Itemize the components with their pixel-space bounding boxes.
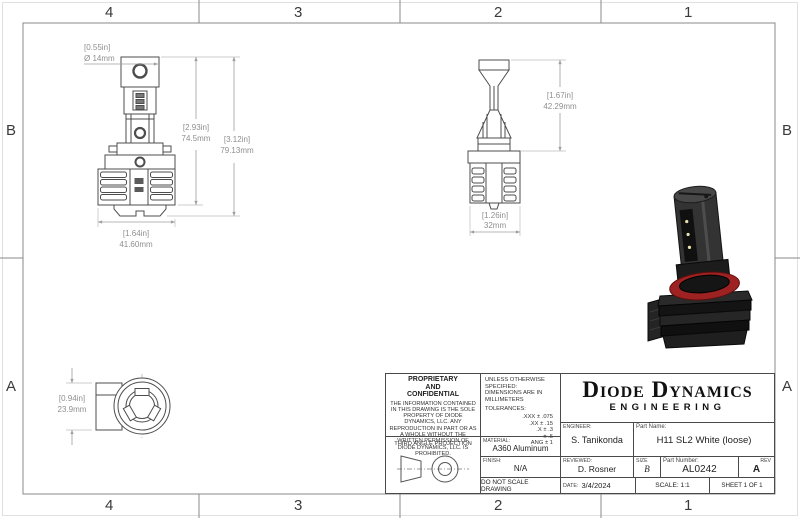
engineer-partname-row: ENGINEER: S. Tanikonda Part Name: H11 SL… (561, 423, 774, 457)
reviewed-value: D. Rosner (561, 464, 633, 474)
date-cell: DATE: 3/4/2024 (561, 478, 636, 493)
rev-cell: REV A (739, 457, 774, 477)
title-block-right-column: Diode Dynamics ENGINEERING ENGINEER: S. … (561, 374, 774, 493)
company-logo: Diode Dynamics ENGINEERING (561, 374, 774, 423)
part-number-value: AL0242 (661, 464, 738, 475)
engineer-value: S. Tanikonda (561, 435, 633, 445)
dimension-top-height: [0.94in] 23.9mm (58, 368, 92, 445)
svg-text:[0.55in]: [0.55in] (84, 43, 110, 52)
title-block-middle-column: UNLESS OTHERWISE SPECIFIED: DIMENSIONS A… (481, 374, 561, 493)
reviewed-cell: REVIEWED: D. Rosner (561, 457, 634, 477)
part-name-cell: Part Name: H11 SL2 White (loose) (634, 423, 774, 456)
tolerance-line: .XXX ± .075 (501, 414, 553, 421)
svg-text:32mm: 32mm (484, 221, 507, 230)
svg-text:23.9mm: 23.9mm (58, 405, 87, 414)
side-view (468, 60, 520, 209)
proprietary-notice: PROPRIETARY AND CONFIDENTIAL THE INFORMA… (386, 374, 480, 437)
part-name-label: Part Name: (636, 424, 666, 430)
unless-otherwise-line: UNLESS OTHERWISE SPECIFIED: (485, 377, 558, 390)
reviewed-partnumber-row: REVIEWED: D. Rosner SIZE B Part Number: … (561, 457, 774, 478)
third-angle-label: THIRD ANGLE PROJECTION (386, 441, 480, 447)
rev-value: A (739, 464, 774, 475)
svg-text:79.13mm: 79.13mm (220, 146, 254, 155)
date-label: DATE: (563, 483, 578, 489)
logo-subtitle: ENGINEERING (561, 402, 774, 413)
size-value: B (634, 464, 660, 474)
render-bulb (659, 183, 740, 303)
svg-text:[1.26in]: [1.26in] (482, 211, 508, 220)
svg-text:[0.94in]: [0.94in] (59, 394, 85, 403)
part-number-cell: Part Number: AL0242 (661, 457, 739, 477)
proprietary-heading: PROPRIETARY AND CONFIDENTIAL (388, 376, 478, 399)
dimension-front-height-outer: [3.12in] 79.13mm (167, 57, 254, 216)
date-value: 3/4/2024 (581, 481, 610, 490)
svg-text:[3.12in]: [3.12in] (224, 135, 250, 144)
drawing-sheet: 4 3 2 1 4 3 2 1 B A B A (0, 0, 800, 518)
tolerances-label: TOLERANCES: (485, 406, 558, 413)
isometric-render (648, 183, 752, 348)
logo-wordmark: Diode Dynamics (561, 379, 774, 401)
material-cell: MATERIAL: A360 Aluminum (481, 437, 560, 457)
material-value: A360 Aluminum (481, 444, 560, 453)
svg-text:[2.93in]: [2.93in] (183, 123, 209, 132)
part-name-value: H11 SL2 White (loose) (634, 435, 774, 446)
engineer-cell: ENGINEER: S. Tanikonda (561, 423, 634, 456)
dimensions-units-line: DIMENSIONS ARE IN MILLIMETERS (485, 390, 558, 403)
third-angle-projection-cell: THIRD ANGLE PROJECTION (386, 437, 480, 493)
title-block: PROPRIETARY AND CONFIDENTIAL THE INFORMA… (385, 373, 775, 494)
tolerance-line: .XX ± .15 (501, 421, 553, 428)
title-block-left-column: PROPRIETARY AND CONFIDENTIAL THE INFORMA… (386, 374, 481, 493)
size-cell: SIZE B (634, 457, 661, 477)
finish-cell: FINISH: N/A (481, 457, 560, 478)
sheet-cell: SHEET 1 OF 1 (710, 478, 774, 493)
svg-text:Ø 14mm: Ø 14mm (84, 54, 115, 63)
dimension-side-height: [1.67in] 42.29mm (511, 60, 577, 151)
date-scale-sheet-row: DATE: 3/4/2024 SCALE: 1:1 SHEET 1 OF 1 (561, 478, 774, 493)
third-angle-projection-icon (395, 450, 471, 488)
do-not-scale-cell: DO NOT SCALE DRAWING (481, 478, 560, 493)
top-view (96, 374, 170, 438)
svg-text:42.29mm: 42.29mm (543, 102, 577, 111)
front-view (98, 57, 175, 216)
general-tolerances-cell: UNLESS OTHERWISE SPECIFIED: DIMENSIONS A… (481, 374, 560, 437)
finish-value: N/A (481, 464, 560, 473)
svg-text:[1.64in]: [1.64in] (123, 229, 149, 238)
tolerance-line: .X ± .3 (501, 427, 553, 434)
svg-text:[1.67in]: [1.67in] (547, 91, 573, 100)
engineer-label: ENGINEER: (563, 424, 592, 430)
svg-text:41.60mm: 41.60mm (119, 240, 153, 249)
scale-cell: SCALE: 1:1 (636, 478, 710, 493)
svg-text:74.5mm: 74.5mm (182, 134, 211, 143)
dimension-side-width: [1.26in] 32mm (470, 206, 520, 236)
